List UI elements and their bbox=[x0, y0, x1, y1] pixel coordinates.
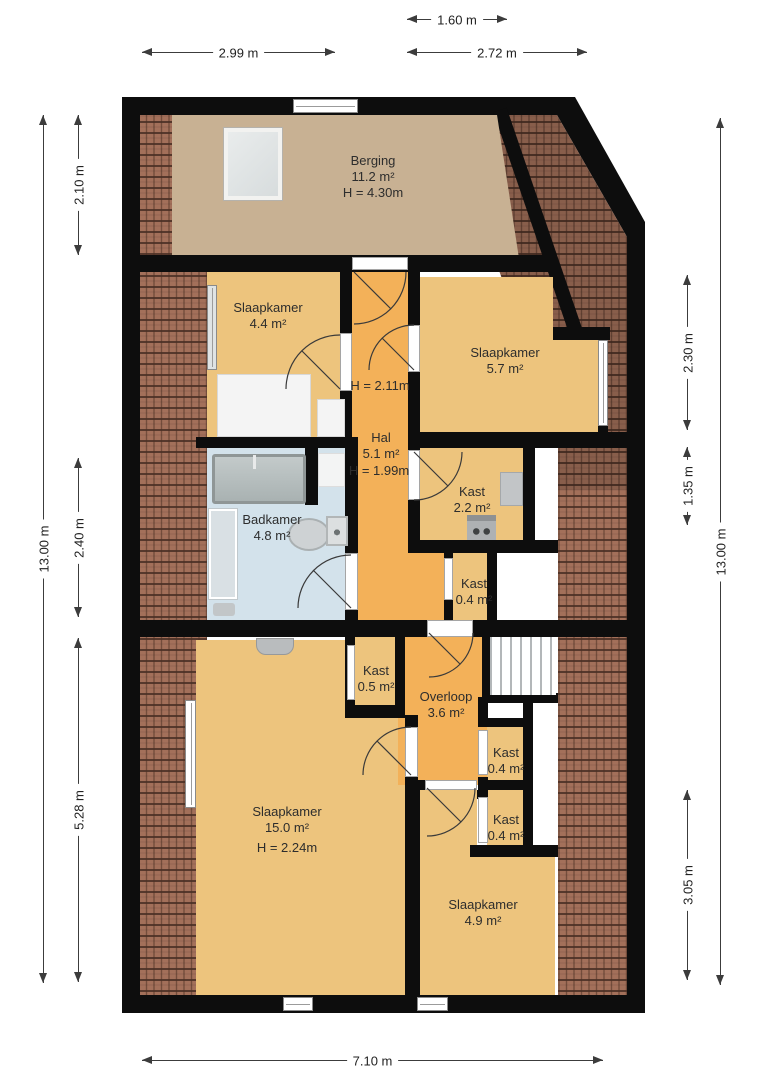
slaapkamer-49-nook bbox=[418, 790, 477, 857]
dimension-label: 2.10 m bbox=[72, 159, 87, 211]
wall bbox=[478, 780, 533, 790]
dimension-left-528: 5.28 m bbox=[78, 638, 79, 982]
room-label-hal: Hal 5.1 m² bbox=[363, 430, 400, 462]
window-top bbox=[293, 99, 358, 113]
room-area: 3.6 m² bbox=[420, 705, 473, 721]
dimension-label: 13.00 m bbox=[37, 520, 52, 579]
dimension-label: 2.40 m bbox=[72, 512, 87, 564]
room-height: H = 4.30m bbox=[343, 185, 403, 201]
room-name: Kast bbox=[456, 576, 493, 592]
slaapkamer-57-room-upper bbox=[418, 277, 553, 337]
room-name: Overloop bbox=[420, 689, 473, 705]
bathtub bbox=[212, 454, 306, 504]
window-slaapkamer-57 bbox=[598, 340, 608, 426]
room-area: 4.9 m² bbox=[448, 913, 517, 929]
dimension-right-230: 2.30 m bbox=[687, 275, 688, 430]
room-name: Berging bbox=[343, 153, 403, 169]
dimension-label: 13.00 m bbox=[714, 522, 729, 581]
room-label-slaapkamer-44: Slaapkamer 4.4 m² bbox=[233, 300, 302, 332]
dimension-left-240: 2.40 m bbox=[78, 458, 79, 617]
door-hal-overloop bbox=[427, 620, 473, 637]
room-area: 0.4 m² bbox=[456, 592, 493, 608]
room-name: Kast bbox=[358, 663, 395, 679]
room-area: 2.2 m² bbox=[454, 500, 491, 516]
washer-unit bbox=[467, 515, 496, 540]
wall bbox=[482, 637, 490, 697]
floor-plan: Berging 11.2 m² H = 4.30m Slaapkamer 4.4… bbox=[0, 0, 764, 1080]
room-label-berging: Berging 11.2 m² H = 4.30m bbox=[343, 153, 403, 201]
room-name: Slaapkamer bbox=[448, 897, 517, 913]
wall bbox=[305, 448, 318, 505]
door-kast-05 bbox=[347, 645, 355, 700]
room-name: Badkamer bbox=[242, 512, 301, 528]
wall bbox=[140, 620, 427, 637]
dimension-label: 7.10 m bbox=[347, 1054, 399, 1069]
room-label-overloop: Overloop 3.6 m² bbox=[420, 689, 473, 721]
window-slaapkamer-15 bbox=[185, 700, 196, 808]
room-name: Slaapkamer bbox=[470, 345, 539, 361]
room-area: 4.4 m² bbox=[233, 316, 302, 332]
staircase bbox=[490, 637, 556, 695]
roof-window-slaapkamer-44 bbox=[207, 285, 217, 370]
dimension-top-299: 2.99 m bbox=[142, 52, 335, 53]
door-badkamer bbox=[345, 553, 358, 610]
wall bbox=[408, 432, 627, 448]
dimension-top-272: 2.72 m bbox=[407, 52, 587, 53]
wall bbox=[420, 540, 558, 553]
window-bottom-right bbox=[417, 997, 448, 1011]
dimension-label: 2.99 m bbox=[213, 46, 265, 61]
dimension-label: 5.28 m bbox=[72, 784, 87, 836]
nightstand-furniture bbox=[317, 399, 345, 437]
door-hal-slaapkamer-57 bbox=[408, 325, 420, 372]
boiler-unit bbox=[500, 472, 523, 506]
room-label-kast-04-hal: Kast 0.4 m² bbox=[456, 576, 493, 608]
dimension-label: 3.05 m bbox=[681, 859, 696, 911]
room-name: Hal bbox=[363, 430, 400, 446]
room-label-badkamer: Badkamer 4.8 m² bbox=[242, 512, 301, 544]
wall bbox=[408, 272, 420, 553]
hal-room-upper bbox=[352, 265, 408, 437]
door-overloop-slaapkamer-15 bbox=[405, 727, 418, 777]
door-kast-04a bbox=[478, 730, 488, 775]
room-area: 5.7 m² bbox=[470, 361, 539, 377]
window-bottom-left bbox=[283, 997, 313, 1011]
room-height: H = 1.99m bbox=[349, 463, 409, 479]
wall bbox=[523, 437, 535, 553]
room-area: 4.8 m² bbox=[242, 528, 301, 544]
room-name: Slaapkamer bbox=[252, 804, 321, 820]
room-area: 5.1 m² bbox=[363, 446, 400, 462]
dimension-right-135: 1.35 m bbox=[687, 447, 688, 525]
wall bbox=[196, 437, 358, 448]
room-label-kast-22: Kast 2.2 m² bbox=[454, 484, 491, 516]
dimension-label: 2.72 m bbox=[471, 46, 523, 61]
label-hal-height-upper: H = 2.11m bbox=[350, 378, 409, 394]
room-label-kast-05: Kast 0.5 m² bbox=[358, 663, 395, 695]
wall bbox=[470, 845, 558, 857]
wall bbox=[405, 788, 420, 995]
dimension-label: 1.35 m bbox=[681, 460, 696, 512]
room-height: H = 2.24m bbox=[252, 840, 321, 856]
wall bbox=[478, 718, 533, 727]
shower-tray bbox=[209, 509, 237, 599]
room-area: 0.4 m² bbox=[488, 828, 525, 844]
room-label-kast-04b: Kast 0.4 m² bbox=[488, 812, 525, 844]
shower-drain bbox=[213, 603, 235, 616]
dimension-bottom-710: 7.10 m bbox=[142, 1060, 603, 1061]
bathtub-tap bbox=[253, 455, 256, 469]
bed-furniture bbox=[217, 374, 311, 437]
wall bbox=[345, 705, 405, 718]
dimension-left-1300: 13.00 m bbox=[43, 115, 44, 983]
dimension-right-1300: 13.00 m bbox=[720, 118, 721, 985]
room-name: Kast bbox=[488, 812, 525, 828]
room-area: 0.5 m² bbox=[358, 679, 395, 695]
shelf bbox=[318, 453, 345, 487]
wall bbox=[140, 255, 553, 272]
room-area: 0.4 m² bbox=[488, 761, 525, 777]
washbasin bbox=[326, 516, 348, 546]
door-overloop-slaapkamer-49 bbox=[425, 780, 477, 790]
sink-slaapkamer bbox=[256, 638, 294, 655]
room-name: Kast bbox=[454, 484, 491, 500]
label-hal-height-lower: H = 1.99m bbox=[349, 463, 409, 479]
dimension-top-160: 1.60 m bbox=[407, 19, 507, 20]
skylight-window bbox=[224, 128, 282, 200]
room-label-slaapkamer-57: Slaapkamer 5.7 m² bbox=[470, 345, 539, 377]
dimension-label: 1.60 m bbox=[431, 13, 483, 28]
door-hal-kast-22 bbox=[408, 450, 420, 500]
door-kast-04b bbox=[478, 797, 488, 843]
room-label-kast-04a: Kast 0.4 m² bbox=[488, 745, 525, 777]
room-area: 11.2 m² bbox=[343, 169, 403, 185]
room-name: Kast bbox=[488, 745, 525, 761]
dimension-right-305: 3.05 m bbox=[687, 790, 688, 980]
door-berging-hal bbox=[352, 257, 408, 270]
room-label-slaapkamer-15: Slaapkamer 15.0 m² H = 2.24m bbox=[252, 804, 321, 856]
dimension-label: 2.30 m bbox=[681, 327, 696, 379]
room-name: Slaapkamer bbox=[233, 300, 302, 316]
room-height: H = 2.11m bbox=[350, 378, 409, 394]
dimension-left-210: 2.10 m bbox=[78, 115, 79, 255]
room-label-slaapkamer-49: Slaapkamer 4.9 m² bbox=[448, 897, 517, 929]
door-kast-04-hal bbox=[444, 558, 453, 600]
room-area: 15.0 m² bbox=[252, 820, 321, 836]
hal-room-lower bbox=[358, 553, 444, 620]
